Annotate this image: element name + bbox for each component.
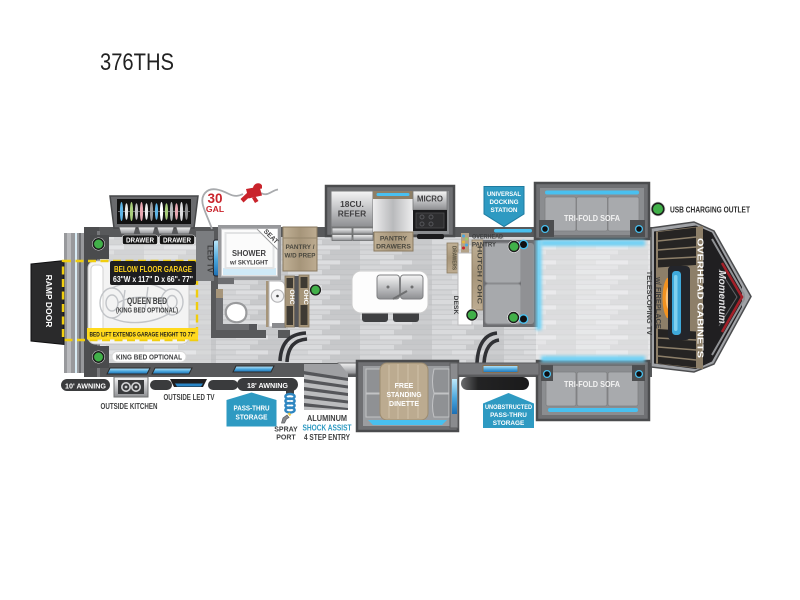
svg-text:(KING BED OPTIONAL): (KING BED OPTIONAL) xyxy=(116,308,178,315)
svg-text:OHC: OHC xyxy=(302,289,309,304)
svg-text:18CU.: 18CU. xyxy=(340,199,364,209)
svg-text:63"W x 117" D x 66"- 77": 63"W x 117" D x 66"- 77" xyxy=(113,274,193,284)
svg-text:4 STEP ENTRY: 4 STEP ENTRY xyxy=(304,433,351,442)
svg-text:PASS-THRU: PASS-THRU xyxy=(490,412,527,419)
svg-text:QUEEN BED: QUEEN BED xyxy=(127,296,167,306)
svg-text:w/ FIREPLACE: w/ FIREPLACE xyxy=(654,276,663,329)
svg-text:MICRO: MICRO xyxy=(417,195,443,204)
svg-text:OVERHEAD: OVERHEAD xyxy=(472,234,503,241)
svg-text:LED TV: LED TV xyxy=(206,245,215,274)
svg-text:TRI-FOLD SOFA: TRI-FOLD SOFA xyxy=(564,214,620,223)
svg-text:STORAGE: STORAGE xyxy=(236,413,268,422)
svg-text:SPRAY: SPRAY xyxy=(274,427,298,434)
svg-text:STORAGE: STORAGE xyxy=(493,420,525,427)
svg-text:ALUMINUM: ALUMINUM xyxy=(307,414,347,423)
svg-text:REFER: REFER xyxy=(338,209,366,219)
svg-text:OVERHEAD CABINETS: OVERHEAD CABINETS xyxy=(696,238,705,359)
svg-text:DRAWER: DRAWER xyxy=(126,235,155,244)
svg-text:Momentum: Momentum xyxy=(716,270,727,323)
svg-text:18' AWNING: 18' AWNING xyxy=(247,381,288,390)
svg-text:STANDING: STANDING xyxy=(387,392,423,399)
svg-text:UNIVERSAL: UNIVERSAL xyxy=(487,191,521,198)
svg-text:STATION: STATION xyxy=(491,207,518,214)
svg-text:376THS: 376THS xyxy=(100,49,174,76)
svg-text:SHOWER: SHOWER xyxy=(232,249,266,258)
svg-text:TRI-FOLD SOFA: TRI-FOLD SOFA xyxy=(564,380,620,389)
svg-text:DOCKING: DOCKING xyxy=(490,199,519,206)
svg-text:OUTSIDE KITCHEN: OUTSIDE KITCHEN xyxy=(101,402,158,411)
svg-text:DESK: DESK xyxy=(452,296,459,315)
svg-text:w/ SKYLIGHT: w/ SKYLIGHT xyxy=(229,260,269,267)
svg-text:HUTCH / OHC: HUTCH / OHC xyxy=(476,246,483,305)
svg-text:PANTRY: PANTRY xyxy=(380,236,408,243)
svg-text:10' AWNING: 10' AWNING xyxy=(65,382,106,391)
svg-text:USB CHARGING OUTLET: USB CHARGING OUTLET xyxy=(670,206,750,215)
svg-text:PASS-THRU: PASS-THRU xyxy=(234,404,270,413)
svg-text:BED LIFT EXTENDS GARAGE HEIGHT: BED LIFT EXTENDS GARAGE HEIGHT TO 77" xyxy=(90,332,196,339)
svg-text:GAL: GAL xyxy=(206,204,224,214)
svg-text:UNOBSTRUCTED: UNOBSTRUCTED xyxy=(485,404,532,411)
svg-text:DINETTE: DINETTE xyxy=(389,401,419,408)
svg-text:SHOCK ASSIST: SHOCK ASSIST xyxy=(303,424,352,433)
svg-text:RAMP DOOR: RAMP DOOR xyxy=(44,275,54,328)
svg-text:FREE: FREE xyxy=(395,383,414,390)
svg-text:BELOW FLOOR GARAGE: BELOW FLOOR GARAGE xyxy=(114,264,192,274)
svg-text:KING BED OPTIONAL: KING BED OPTIONAL xyxy=(116,355,183,362)
svg-text:PANTRY /: PANTRY / xyxy=(286,244,315,251)
svg-text:DRAWERS: DRAWERS xyxy=(376,244,411,251)
svg-text:W/D PREP: W/D PREP xyxy=(285,253,316,260)
svg-text:OUTSIDE LED TV: OUTSIDE LED TV xyxy=(164,393,216,402)
svg-text:OHC: OHC xyxy=(288,289,295,304)
svg-text:PANTRY: PANTRY xyxy=(472,242,496,249)
svg-text:DRAWER: DRAWER xyxy=(163,235,192,244)
svg-text:TELESCOPING TV: TELESCOPING TV xyxy=(645,271,654,336)
svg-text:PORT: PORT xyxy=(276,435,296,442)
svg-text:DRAWERS: DRAWERS xyxy=(451,246,457,270)
